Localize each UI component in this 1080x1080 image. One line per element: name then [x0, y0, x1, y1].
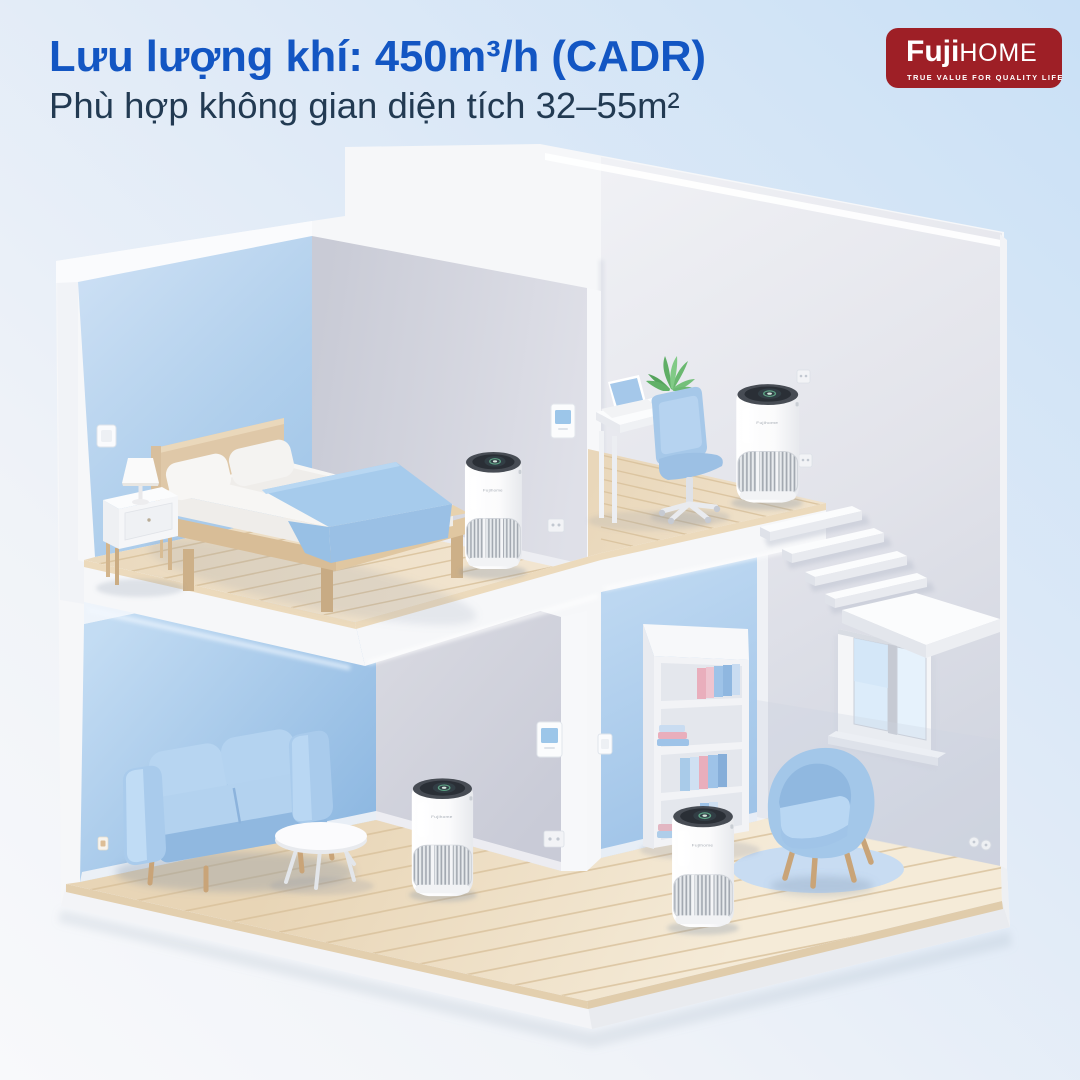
svg-text:Fujihome: Fujihome — [692, 843, 714, 848]
svg-text:Fujihome: Fujihome — [483, 488, 503, 493]
svg-text:Fujihome: Fujihome — [431, 814, 453, 819]
svg-text:Fujihome: Fujihome — [756, 420, 778, 424]
